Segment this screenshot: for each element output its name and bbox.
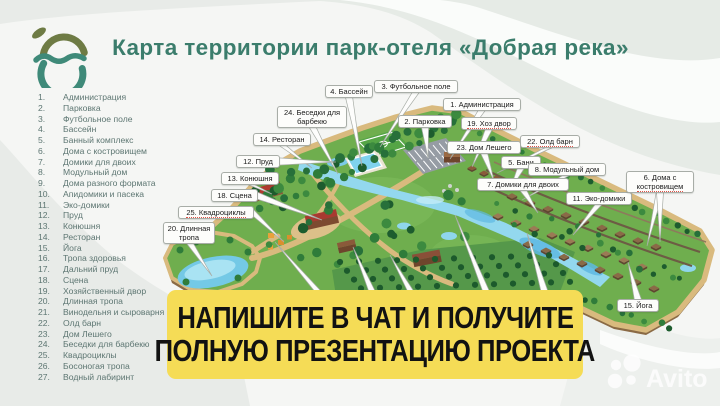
cta-line-1: НАПИШИТЕ В ЧАТ И ПОЛУЧИТЕ: [177, 300, 573, 337]
cta-banner: НАПИШИТЕ В ЧАТ И ПОЛУЧИТЕ ПОЛНУЮ ПРЕЗЕНТ…: [167, 290, 583, 379]
avito-logo-text: Avito: [646, 365, 708, 393]
avito-logo-icon: [608, 354, 641, 388]
listing-image: Карта территории парк-отеля «Добрая река…: [0, 0, 720, 406]
cta-line-2: ПОЛНУЮ ПРЕЗЕНТАЦИЮ ПРОЕКТА: [155, 333, 595, 370]
administration-building: [444, 152, 460, 163]
quad-shed: [268, 233, 274, 238]
quad-shed: [287, 235, 292, 240]
avito-watermark: Avito: [602, 352, 720, 400]
